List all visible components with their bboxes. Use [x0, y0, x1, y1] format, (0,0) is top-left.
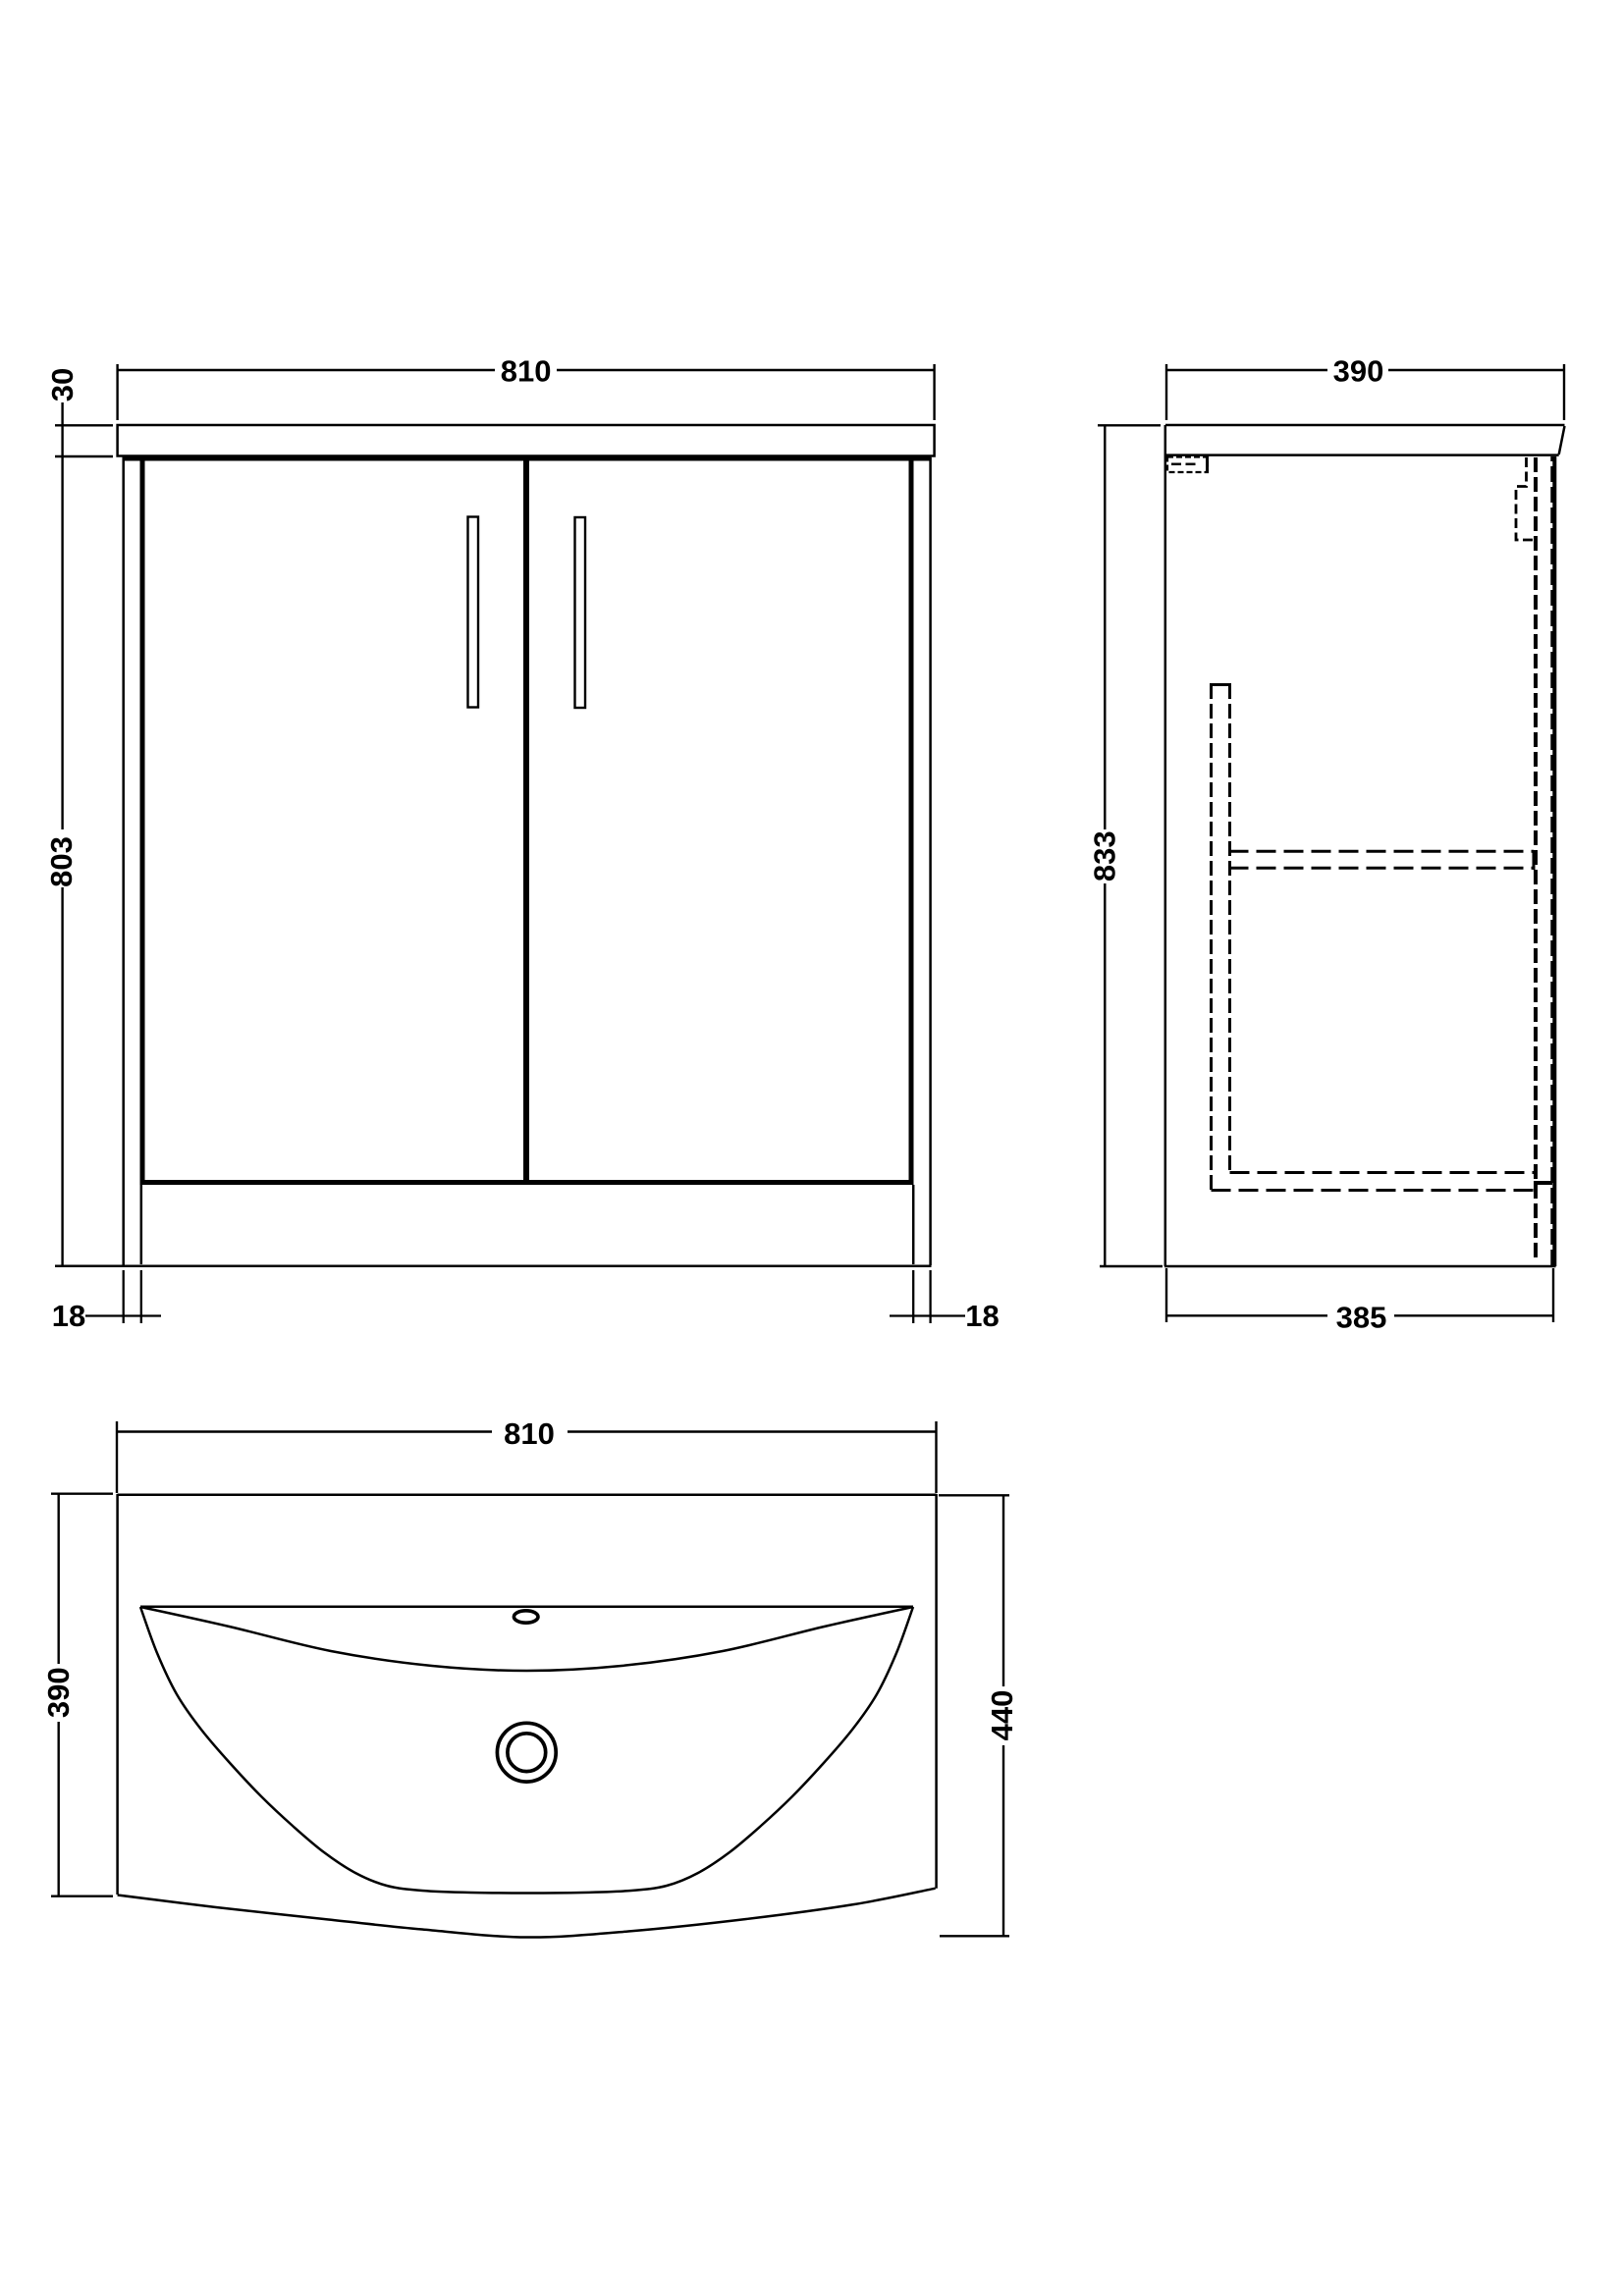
svg-text:390: 390 — [1333, 354, 1384, 389]
svg-text:810: 810 — [501, 354, 552, 389]
svg-text:385: 385 — [1336, 1301, 1387, 1335]
svg-text:18: 18 — [52, 1299, 85, 1333]
svg-text:833: 833 — [1088, 830, 1122, 881]
svg-text:803: 803 — [44, 836, 79, 887]
svg-text:440: 440 — [985, 1690, 1019, 1741]
svg-text:18: 18 — [965, 1299, 999, 1333]
svg-text:30: 30 — [45, 368, 80, 401]
svg-text:810: 810 — [504, 1416, 555, 1451]
svg-text:390: 390 — [41, 1667, 76, 1718]
